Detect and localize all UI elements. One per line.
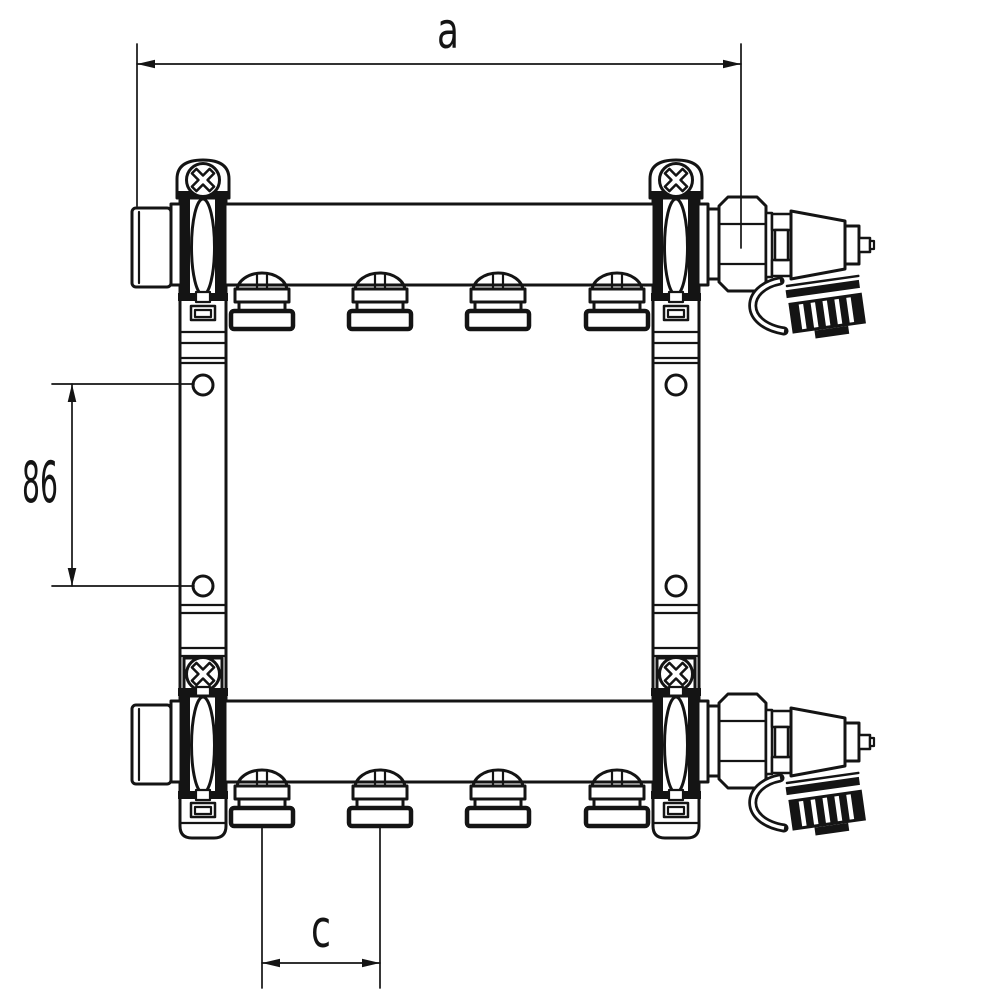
- technical-drawing-page: a 86 c: [0, 0, 1000, 1000]
- dimension-c-label: c: [311, 900, 331, 960]
- dimension-86-label: 86: [22, 450, 58, 516]
- dimension-86: 86: [22, 384, 194, 586]
- arrow-right-icon: [362, 959, 380, 968]
- arrow-up-icon: [68, 384, 77, 402]
- top-manifold-row: [132, 197, 874, 342]
- dimension-a-label: a: [437, 2, 459, 60]
- arrow-down-icon: [68, 568, 77, 586]
- bottom-manifold-row: [132, 694, 874, 839]
- arrow-left-icon: [262, 959, 280, 968]
- manifold-technical-drawing: a 86 c: [0, 0, 1000, 1000]
- dimension-c: c: [262, 827, 380, 988]
- arrow-right-icon: [723, 60, 741, 69]
- arrow-left-icon: [137, 60, 155, 69]
